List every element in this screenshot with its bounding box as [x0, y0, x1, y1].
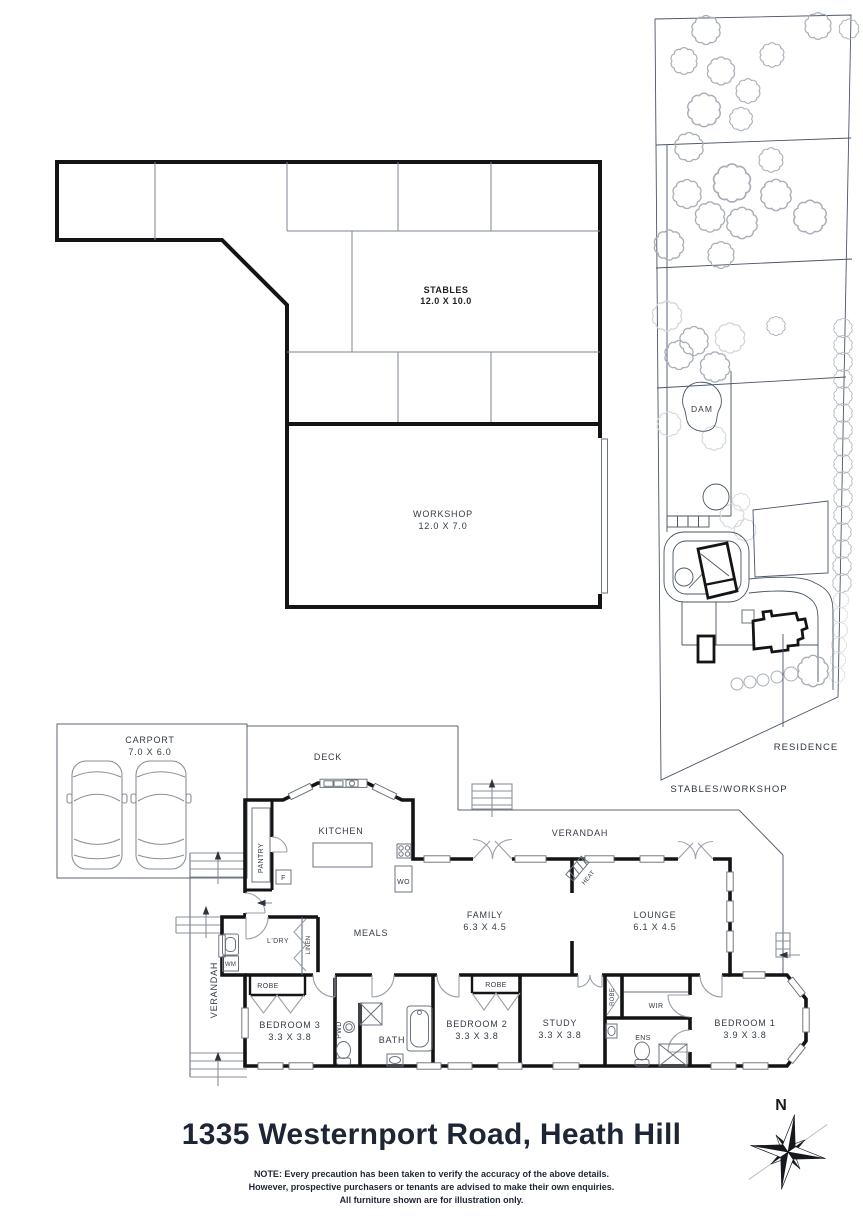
site-stables-building — [698, 543, 737, 598]
plan-canvas: STABLES 12.0 X 10.0 WORKSHOP 12.0 X 7.0 — [0, 0, 863, 1221]
site-trees — [652, 13, 858, 542]
robe-bed3-label: ROBE — [257, 983, 278, 990]
bedroom2-label: BEDROOM 2 — [446, 1019, 507, 1029]
kitchen-label: KITCHEN — [318, 826, 363, 836]
workshop-dims: 12.0 X 7.0 — [418, 521, 467, 531]
ens-label: ENS — [635, 1035, 651, 1042]
wir-label: WIR — [649, 1003, 664, 1010]
carport-dims: 7.0 X 6.0 — [128, 747, 171, 757]
driveway — [664, 532, 833, 690]
west-steps-top — [190, 852, 247, 884]
robe-bed2-label: ROBE — [485, 982, 506, 989]
site-residence-building — [753, 611, 807, 652]
washing-machine: WM — [223, 956, 239, 971]
west-steps-mid — [176, 907, 222, 938]
page-title: 1335 Westernport Road, Heath Hill — [0, 1118, 863, 1152]
bedroom1-dims: 3.9 X 3.8 — [723, 1030, 766, 1040]
stables-label: STABLES — [424, 285, 469, 295]
bedroom3-label: BEDROOM 3 — [259, 1020, 320, 1030]
house-floor-plan: CARPORT 7.0 X 6.0 DECK VERANDAH VERANDAH — [57, 724, 809, 1086]
site-plan: DAM — [652, 13, 858, 795]
linen-label: LINEN — [306, 936, 312, 955]
disclaimer-line: NOTE: Every precaution has been taken to… — [0, 1168, 863, 1181]
bath-label: BATH — [379, 1035, 406, 1045]
family-dims: 6.3 X 4.5 — [463, 922, 506, 932]
bedroom3-dims: 3.3 X 3.8 — [268, 1032, 311, 1042]
carport-label: CARPORT — [125, 735, 174, 745]
disclaimer-note: NOTE: Every precaution has been taken to… — [0, 1168, 863, 1207]
robe-study-label: ROBE — [610, 988, 616, 1006]
lounge-label: LOUNGE — [634, 910, 677, 920]
residence-label: RESIDENCE — [774, 742, 838, 753]
meals-label: MEALS — [354, 928, 389, 938]
dam-label: DAM — [691, 404, 713, 414]
disclaimer-line: However, prospective purchasers or tenan… — [0, 1181, 863, 1194]
east-steps — [776, 933, 800, 957]
disclaimer-line: All furniture shown are for illustration… — [0, 1194, 863, 1207]
verandah-left-label: VERANDAH — [209, 962, 219, 1018]
laundry-label: L'DRY — [267, 938, 289, 945]
study-label: STUDY — [543, 1018, 578, 1028]
fridge-label: F — [281, 875, 286, 882]
west-steps-bottom — [190, 1053, 247, 1086]
outbuilding-plan: STABLES 12.0 X 10.0 WORKSHOP 12.0 X 7.0 — [57, 162, 608, 607]
deck-label: DECK — [314, 752, 342, 762]
family-label: FAMILY — [467, 910, 503, 920]
car-icon — [67, 761, 127, 869]
kitchen-sink-unit — [320, 779, 367, 787]
workshop-label: WORKSHOP — [413, 509, 473, 519]
lounge-dims: 6.1 X 4.5 — [633, 922, 676, 932]
bedroom2-dims: 3.3 X 3.8 — [455, 1031, 498, 1041]
site-bushes — [731, 655, 828, 690]
stables-dims: 12.0 X 10.0 — [420, 296, 472, 306]
floorplan-page: STABLES 12.0 X 10.0 WORKSHOP 12.0 X 7.0 — [0, 0, 863, 1221]
deck-stairs — [472, 780, 512, 817]
car-icon — [131, 761, 191, 869]
workshop-door-panel — [602, 439, 608, 593]
site-shed — [698, 636, 714, 662]
powder-label: PWD — [336, 1021, 343, 1039]
ensuite-fixtures — [606, 1024, 687, 1066]
heater-label: HEAT — [581, 870, 596, 886]
stables-workshop-label: STABLES/WORKSHOP — [670, 784, 787, 795]
fridge: F — [276, 870, 291, 884]
wall-oven: WO — [395, 866, 412, 892]
stock-yards — [667, 516, 709, 527]
kitchen-island — [313, 843, 372, 867]
bedroom1-label: BEDROOM 1 — [714, 1018, 775, 1028]
washing-machine-label: WM — [225, 962, 236, 968]
compass-north-label: N — [775, 1097, 787, 1114]
paddock — [753, 501, 828, 577]
cooktop — [397, 844, 411, 858]
pantry-label: PANTRY — [258, 843, 265, 873]
verandah-top-label: VERANDAH — [552, 828, 608, 838]
water-tank — [703, 484, 729, 510]
wall-oven-label: WO — [397, 879, 410, 886]
study-dims: 3.3 X 3.8 — [538, 1030, 581, 1040]
